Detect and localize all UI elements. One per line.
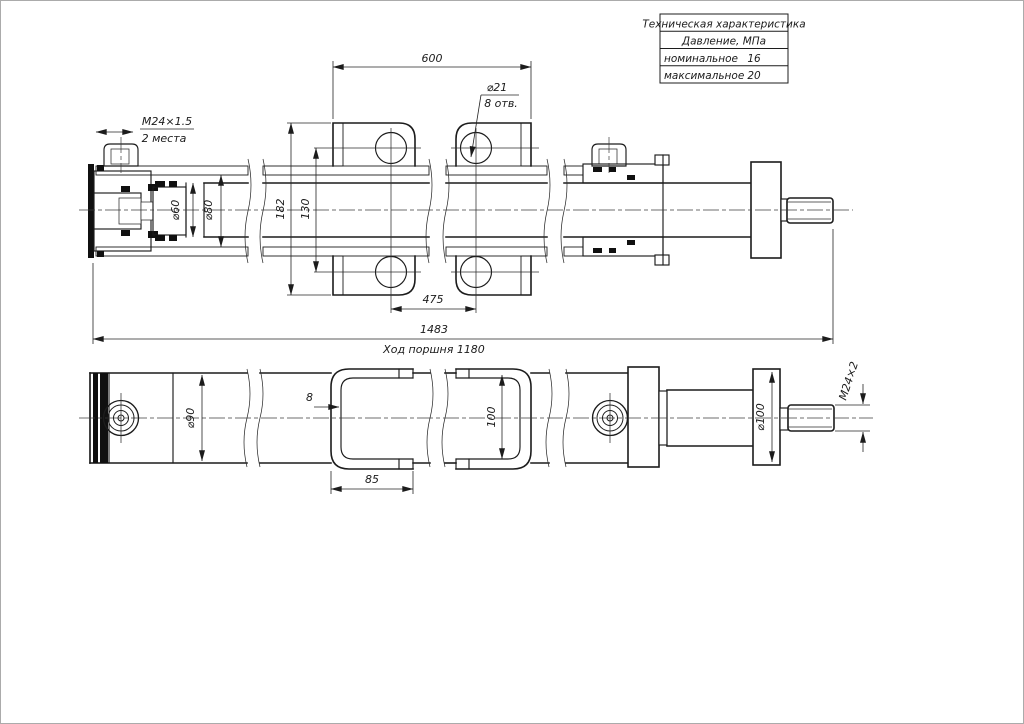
dim-600-text: 600: [422, 52, 443, 65]
flange-dia-text: ⌀100: [754, 403, 767, 431]
spec-row-nominal-value: 16: [747, 53, 761, 65]
port-boss-left: [104, 137, 138, 173]
bracket-strap-left: [331, 369, 413, 469]
plan-view: ⌀90 8 85 100 ⌀100 M24×2: [79, 360, 873, 494]
dim-100-text: 100: [485, 407, 498, 428]
spec-row-max-label: максимальное: [664, 70, 744, 82]
port-places-text: 2 места: [142, 132, 187, 145]
port-circle-right: [593, 393, 628, 443]
tube-dia-text: ⌀90: [184, 408, 197, 429]
dim-85: 85: [331, 471, 413, 494]
front-section-view: 600 ⌀21 8 отв. M24×1.5 2 места ⌀60 ⌀80 1…: [79, 52, 853, 356]
port-thread-text: M24×1.5: [142, 115, 192, 128]
stroke-note-text: Ход поршня 1180: [382, 343, 485, 356]
bore-dia-text: ⌀80: [202, 200, 215, 221]
rod-dia-text: ⌀60: [169, 200, 182, 221]
port-callout: M24×1.5 2 места: [96, 115, 194, 145]
spec-row-max-value: 20: [747, 70, 761, 82]
dim-85-text: 85: [365, 473, 379, 486]
hole-dia-text: ⌀21: [487, 81, 508, 94]
drawing-sheet: Техническая характеристика Давление, МПа…: [0, 0, 1024, 724]
spec-row-nominal-label: номинальное: [664, 53, 738, 65]
front-cap-plan: [628, 367, 834, 467]
dim-182-text: 182: [274, 199, 287, 220]
rear-cap-and-piston: [88, 164, 204, 258]
hydraulic-cylinder-drawing: Техническая характеристика Давление, МПа…: [1, 1, 1024, 724]
dim-1483-text: 1483: [420, 323, 448, 336]
hole-count-text: 8 отв.: [484, 97, 518, 110]
dim-475-text: 475: [423, 293, 444, 306]
dim-130-text: 130: [299, 199, 312, 220]
dim-tube-dia: ⌀90: [184, 375, 202, 461]
spec-table-subtitle: Давление, МПа: [681, 36, 766, 48]
dim-bracket-wall: 8: [306, 391, 339, 407]
spec-table-title: Техническая характеристика: [642, 19, 805, 31]
rod-thread-text: M24×2: [836, 360, 861, 402]
bracket-wall-text: 8: [306, 391, 313, 404]
dim-100: 100: [485, 375, 502, 459]
mounting-brackets-front: [314, 123, 539, 313]
spec-table: Техническая характеристика Давление, МПа…: [642, 14, 805, 83]
dim-rod-thread: M24×2: [835, 360, 870, 452]
